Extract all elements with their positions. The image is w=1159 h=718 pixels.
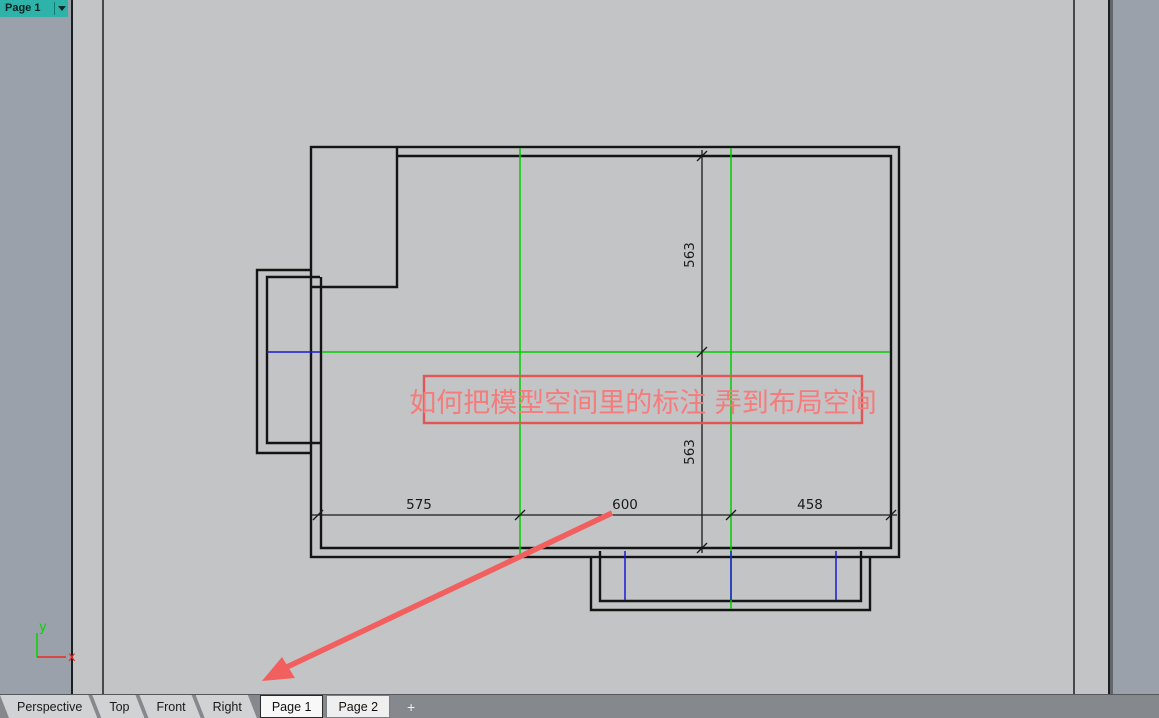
floor-plan-walls[interactable]: [257, 147, 899, 610]
layout-canvas[interactable]: 575 600 458 563 563 如何把模型空间里的标注 弄到布局空间 y…: [0, 0, 1159, 694]
annotation-callout[interactable]: 如何把模型空间里的标注 弄到布局空间: [409, 376, 877, 423]
tab-page-1[interactable]: Page 1: [260, 695, 324, 718]
annotation-text[interactable]: 如何把模型空间里的标注 弄到布局空间: [409, 388, 877, 419]
tab-top[interactable]: Top: [92, 695, 144, 718]
tab-perspective-label: Perspective: [17, 700, 82, 714]
guide-lines-green[interactable]: [322, 148, 890, 609]
viewport-tab-bar: Perspective Top Front Right Page 1 Page …: [0, 694, 1159, 718]
tab-front-label: Front: [156, 700, 185, 714]
dim-label-563-top: 563: [682, 242, 698, 268]
tab-page-2-label: Page 2: [338, 700, 378, 714]
tab-page-2[interactable]: Page 2: [326, 695, 390, 718]
dim-label-563-bottom: 563: [682, 439, 698, 465]
dimension-labels: 575 600 458 563 563: [406, 242, 823, 513]
x-axis-label: x: [68, 650, 76, 665]
tab-right[interactable]: Right: [196, 695, 257, 718]
add-page-button[interactable]: +: [398, 695, 424, 718]
tab-page-1-label: Page 1: [272, 700, 312, 714]
tab-perspective[interactable]: Perspective: [0, 695, 97, 718]
tab-front[interactable]: Front: [139, 695, 200, 718]
dim-label-575: 575: [406, 497, 432, 513]
chevron-down-icon: [58, 6, 66, 11]
tab-right-label: Right: [213, 700, 242, 714]
tab-top-label: Top: [109, 700, 129, 714]
axis-gizmo: y x: [37, 620, 76, 665]
dim-label-458: 458: [797, 497, 823, 513]
dim-label-600: 600: [612, 497, 638, 513]
page-dropdown-button[interactable]: [55, 6, 68, 11]
y-axis-label: y: [39, 620, 47, 635]
active-page-dropdown[interactable]: Page 1: [0, 0, 68, 17]
annotation-arrow[interactable]: [262, 513, 612, 681]
active-page-label: Page 1: [0, 0, 54, 17]
plus-icon: +: [407, 699, 415, 715]
